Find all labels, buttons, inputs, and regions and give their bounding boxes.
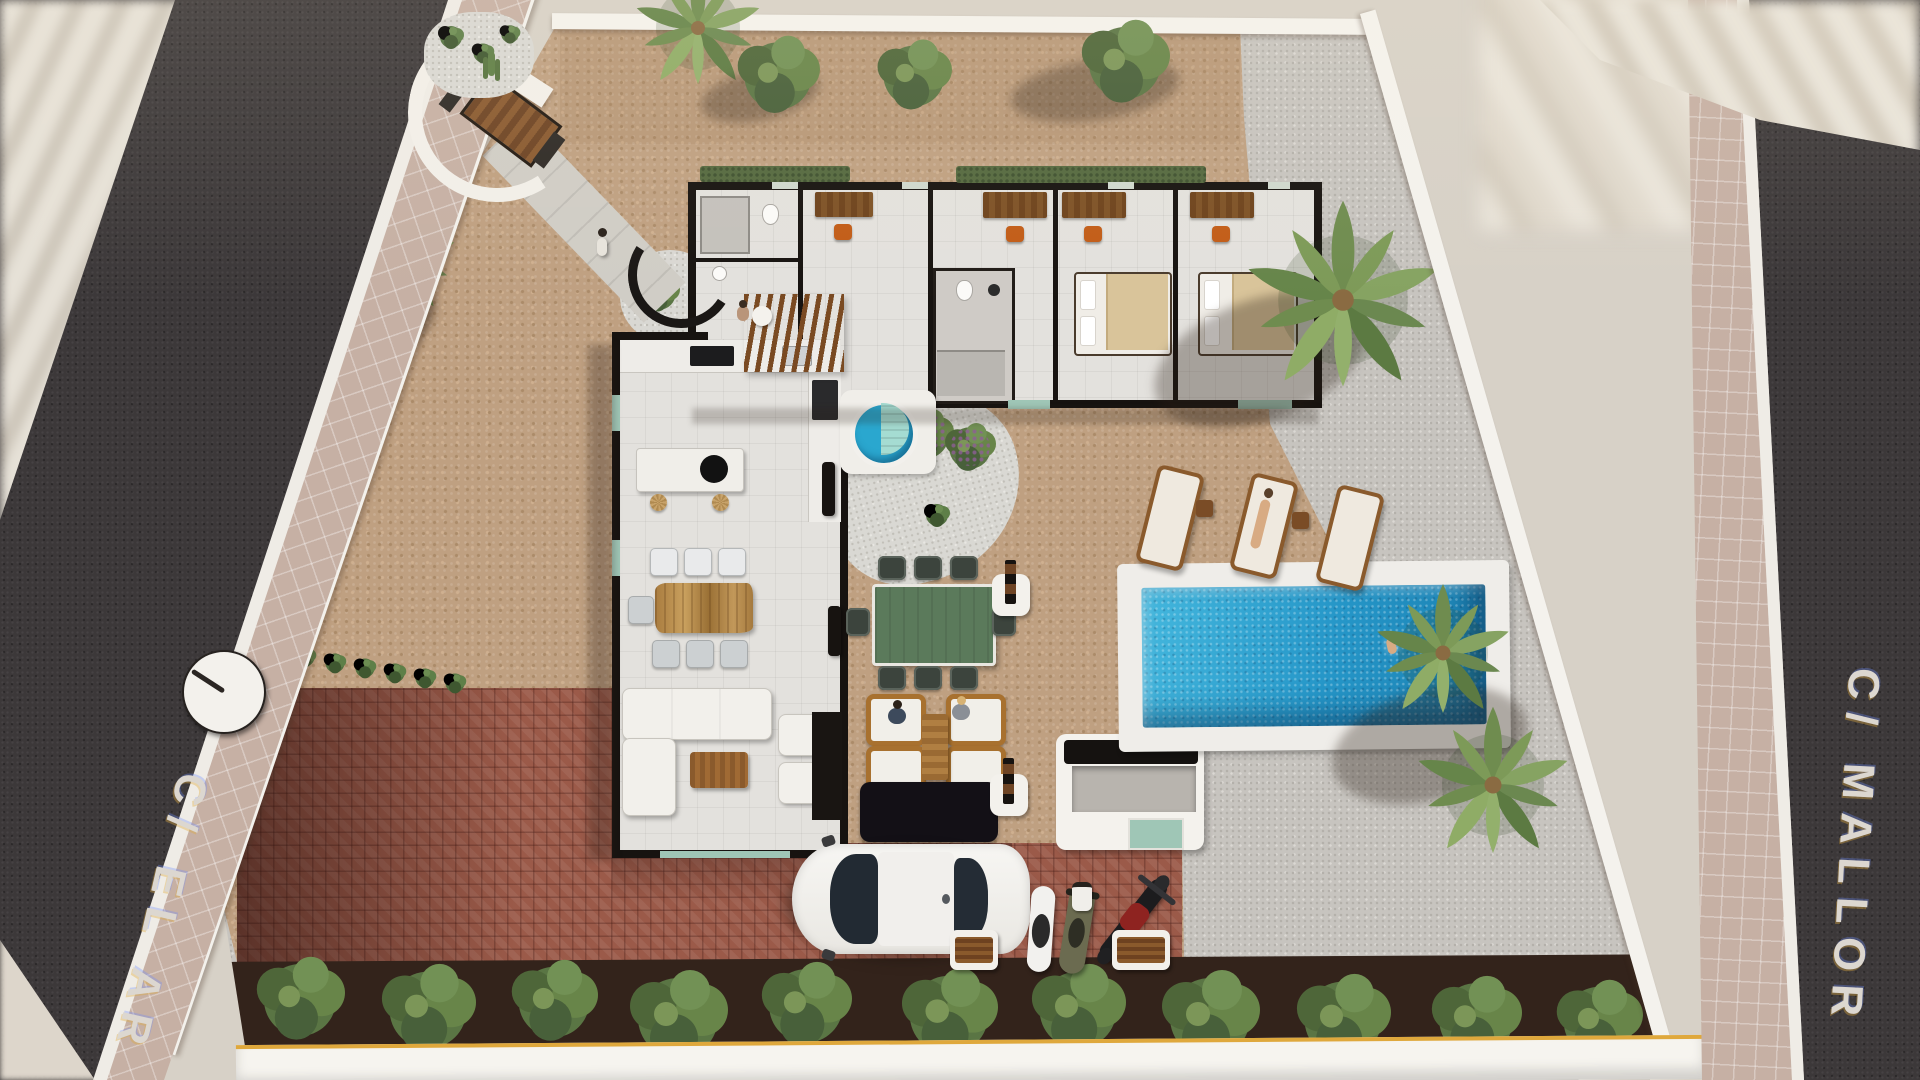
- hedge-shrub: [760, 960, 852, 1052]
- bedroom-desk: [983, 192, 1047, 218]
- house-shadow-west: [588, 345, 614, 860]
- hedge-shrub: [510, 958, 598, 1046]
- patio-chair: [914, 666, 942, 690]
- patio-chair: [878, 556, 906, 580]
- dining-chair: [650, 548, 678, 576]
- person-sunbathing: [1247, 486, 1277, 553]
- patio-chair: [914, 556, 942, 580]
- pool-house-glass: [1128, 818, 1184, 850]
- saguaro-cactus: [488, 52, 495, 76]
- planter-bench: [950, 930, 998, 970]
- sofa-main: [622, 688, 772, 740]
- bedroom-desk: [1062, 192, 1126, 218]
- desk-chair: [834, 224, 852, 240]
- pool-house-interior: [1072, 766, 1196, 812]
- partition-wall: [1053, 189, 1058, 401]
- sofa-chaise: [622, 738, 676, 816]
- bed-blanket: [1106, 274, 1168, 350]
- shade-sail: [860, 782, 998, 842]
- cactus: [436, 22, 466, 52]
- border-shrub: [412, 665, 438, 691]
- north-hedge-strip: [700, 166, 850, 182]
- lounger-side-table: [1196, 500, 1213, 517]
- window-notch: [1268, 182, 1290, 189]
- cactus: [498, 22, 522, 46]
- island-basin: [700, 455, 728, 483]
- outdoor-shower: [990, 758, 1030, 816]
- person-seated: [736, 300, 750, 322]
- compass-hand: [191, 669, 226, 694]
- toilet: [956, 280, 973, 301]
- palm-tree: [1408, 700, 1578, 870]
- window-notch: [902, 182, 928, 189]
- dining-table: [655, 583, 753, 633]
- window-notch: [1108, 182, 1134, 189]
- living-wing-north-wall: [612, 332, 708, 340]
- pillow: [1080, 316, 1096, 346]
- bath-sink: [988, 284, 1000, 296]
- patio-chair: [950, 556, 978, 580]
- pillow: [1204, 280, 1220, 310]
- border-shrub: [322, 650, 348, 676]
- car-windshield: [830, 854, 878, 944]
- window-notch: [772, 182, 798, 189]
- bedroom-desk: [815, 192, 873, 217]
- dining-chair: [684, 548, 712, 576]
- border-shrub: [382, 660, 408, 686]
- planter-bench: [1112, 930, 1170, 970]
- rattan-stool: [712, 494, 729, 511]
- toilet: [762, 204, 779, 225]
- flower-bush-bloom: [950, 428, 990, 466]
- patio-chair: [950, 666, 978, 690]
- pillow: [1080, 280, 1096, 310]
- agave-plant: [922, 500, 952, 530]
- rattan-stool: [650, 494, 667, 511]
- compass-icon: [182, 650, 266, 734]
- border-shrub: [442, 670, 468, 696]
- person-standing: [594, 228, 610, 258]
- patio-table: [872, 584, 996, 666]
- driveway-shadow: [237, 688, 637, 962]
- olive-tree: [876, 38, 952, 114]
- scooter-white: [1023, 885, 1059, 975]
- dining-chair: [652, 640, 680, 668]
- car-antenna: [942, 894, 950, 904]
- bollard: [1072, 882, 1092, 911]
- lounge-table: [922, 714, 948, 780]
- patio-heater: [822, 462, 835, 516]
- olive-tree: [736, 34, 820, 118]
- aerial-villa-site-plan: C/ EL AR C/ MALLOR: [0, 0, 1920, 1080]
- dining-chair: [686, 640, 714, 668]
- lounger-side-table: [1292, 512, 1309, 529]
- patio-chair: [878, 666, 906, 690]
- south-glass-slider: [660, 851, 790, 858]
- dining-chair: [628, 596, 654, 624]
- double-bed: [1074, 272, 1172, 356]
- porch-table: [752, 306, 772, 326]
- outdoor-shower: [992, 560, 1032, 616]
- house-shadow-north-strip: [692, 408, 1318, 424]
- dining-chair: [720, 640, 748, 668]
- large-palm-tree: [1235, 192, 1451, 408]
- media-wall: [812, 712, 842, 820]
- person-seated: [952, 696, 970, 722]
- cooktop: [690, 346, 734, 366]
- person-seated: [888, 700, 906, 726]
- north-hedge-strip: [956, 166, 1206, 183]
- coffee-table: [690, 752, 748, 788]
- patio-chair: [846, 608, 870, 636]
- desk-chair: [1006, 226, 1024, 242]
- patio-speaker: [828, 606, 841, 656]
- hedge-shrub: [255, 955, 345, 1045]
- desk-chair: [1212, 226, 1230, 242]
- shower: [937, 350, 1005, 396]
- border-shrub: [352, 655, 378, 681]
- desk-chair: [1084, 226, 1102, 242]
- dining-chair: [718, 548, 746, 576]
- olive-tree: [1080, 18, 1170, 108]
- car-rear-window: [954, 858, 988, 940]
